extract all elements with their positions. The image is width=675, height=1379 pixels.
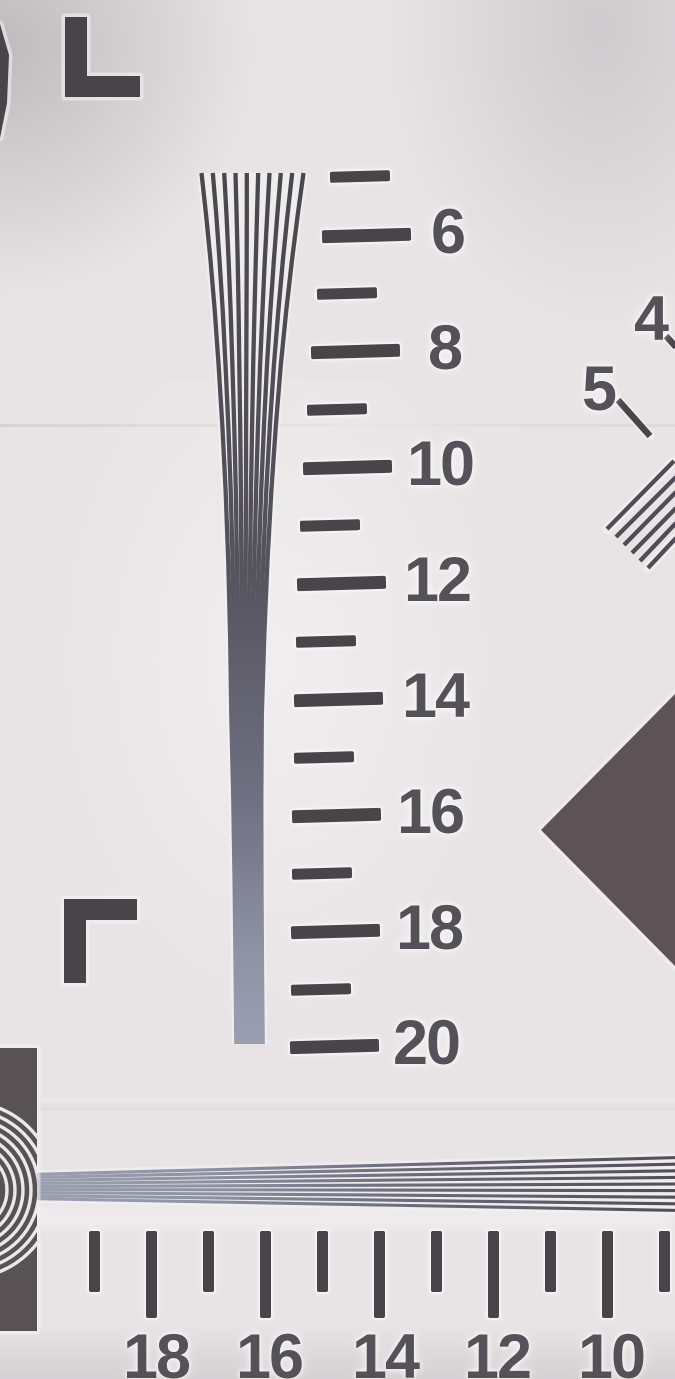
h-tick-minor — [545, 1231, 556, 1292]
h-tick-major — [488, 1231, 499, 1318]
resolution-test-chart-photo: 68101214161820 1816141210 4 5 — [0, 0, 675, 1379]
v-tick-major — [322, 227, 411, 242]
corner-bracket-middle-left — [64, 899, 137, 983]
v-tick-minor — [296, 635, 356, 648]
horizontal-ruler-label: 14 — [352, 1326, 418, 1379]
horizontal-ruler-label: 10 — [578, 1326, 644, 1379]
wedge-label-5: 5 — [582, 358, 615, 421]
h-tick-major — [602, 1231, 613, 1318]
h-tick-major — [146, 1231, 157, 1318]
v-tick-minor — [292, 867, 352, 880]
left-edge-mark — [0, 24, 9, 138]
h-tick-minor — [317, 1231, 328, 1292]
v-tick-minor — [307, 403, 367, 416]
vertical-ruler-label: 16 — [397, 781, 463, 844]
v-tick-major — [291, 923, 380, 938]
horizontal-resolution-wedge — [36, 1153, 675, 1215]
horizontal-ruler-label: 16 — [236, 1326, 302, 1379]
h-tick-minor — [203, 1231, 214, 1292]
h-tick-major — [260, 1231, 271, 1318]
corner-bracket-top-left — [65, 17, 140, 97]
v-tick-major — [297, 575, 386, 590]
vertical-ruler-label: 8 — [428, 317, 461, 380]
v-tick-minor — [291, 983, 351, 996]
v-tick-major — [303, 459, 392, 474]
h-tick-minor — [659, 1231, 670, 1292]
vertical-ruler-label: 10 — [407, 433, 473, 496]
wedge-stripe — [36, 1190, 675, 1191]
h-tick-minor — [89, 1231, 100, 1292]
v-tick-major — [292, 807, 381, 822]
vertical-ruler-label: 20 — [393, 1012, 459, 1075]
vertical-ruler-label: 12 — [404, 549, 470, 612]
vertical-ruler-label: 6 — [431, 201, 464, 264]
v-tick-major — [311, 343, 400, 358]
chart-artwork — [0, 0, 675, 1379]
v-tick-minor — [317, 287, 377, 300]
vertical-resolution-wedge — [197, 173, 308, 1044]
diagonal-hatch-wedge — [607, 461, 675, 568]
marker-line-5 — [618, 400, 650, 436]
v-tick-minor — [330, 170, 390, 183]
vertical-ruler-label: 14 — [402, 665, 468, 728]
h-tick-minor — [431, 1231, 442, 1292]
h-tick-major — [374, 1231, 385, 1318]
horizontal-ruler-label: 18 — [123, 1326, 189, 1379]
vertical-ruler-label: 18 — [396, 897, 462, 960]
marker-line-4 — [666, 336, 675, 347]
wedge-label-4: 4 — [634, 288, 667, 351]
v-tick-major — [294, 691, 383, 706]
v-tick-minor — [300, 519, 360, 532]
horizontal-ruler-label: 12 — [464, 1326, 530, 1379]
v-tick-minor — [294, 751, 354, 764]
v-tick-major — [290, 1038, 379, 1053]
diamond-marker — [541, 693, 675, 967]
